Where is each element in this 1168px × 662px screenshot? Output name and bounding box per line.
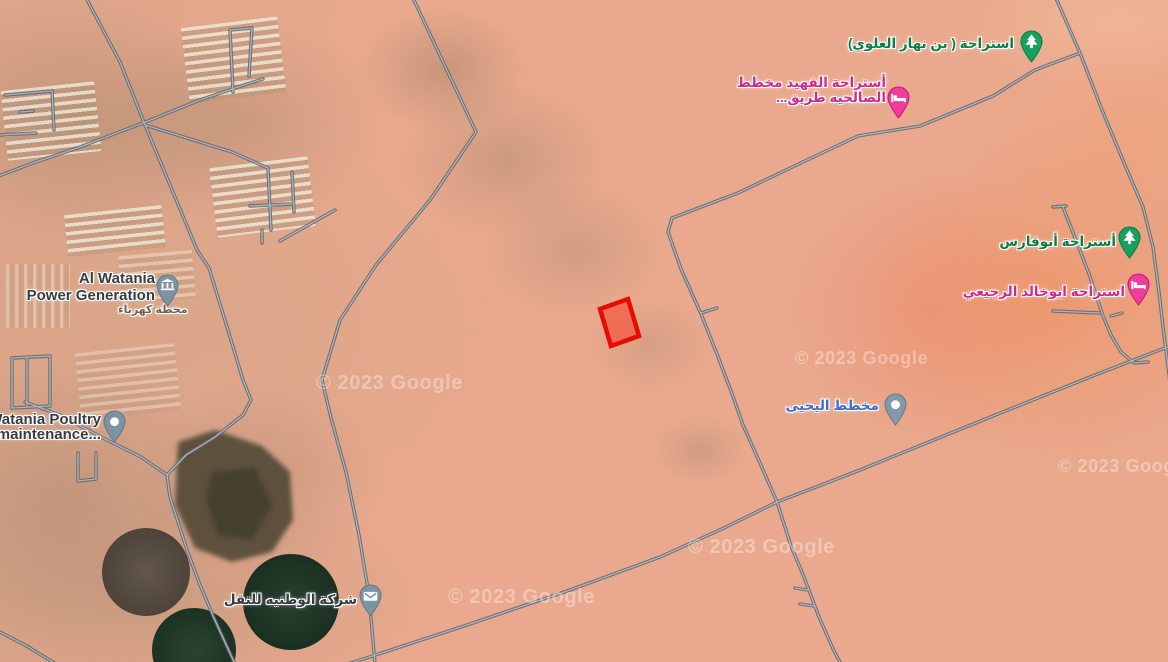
poi-label-watania-poultry-line2[interactable]: al maintenance... [0,427,101,442]
bank-pin[interactable] [155,274,180,307]
bed-pin[interactable] [1126,273,1151,306]
poi-label-watania-transport[interactable]: شركة الوطنيه للنقل [224,592,357,607]
selected-parcel-polygon[interactable] [600,299,639,346]
google-watermark: © 2023 Google [795,348,928,369]
selected-parcel-overlay[interactable] [0,0,1168,662]
poi-label-fahid-line1[interactable]: أستراحة الفهيد مخطط [737,75,886,90]
google-watermark: © 2023 Google [688,536,835,559]
poi-label-watania-power-line1[interactable]: Al Watania [27,271,155,288]
google-watermark: © 2023 Google [316,372,463,395]
tree-pin[interactable] [1117,226,1142,259]
satellite-map[interactable]: © 2023 Google © 2023 Google © 2023 Googl… [0,0,1168,662]
google-watermark: © 2023 Google [448,586,595,609]
poi-label-fahid-line2[interactable]: الصالحيه طريق... [737,90,886,105]
google-watermark: © 2023 Google [1058,456,1168,477]
mail-pin[interactable] [358,584,383,617]
place-dot-pin[interactable] [102,410,127,443]
place-dot-pin[interactable] [883,393,908,426]
poi-label-yahya[interactable]: مخطط اليحيى [785,398,879,413]
poi-label-watania-power-line2[interactable]: Power Generation [27,288,155,305]
poi-label-abukhalid[interactable]: استراحة ابوخالد الرجيعي [963,284,1125,299]
bed-pin[interactable] [886,86,911,119]
poi-label-watania-poultry-line1[interactable]: Watania Poultry [0,412,101,427]
tree-pin[interactable] [1019,30,1044,63]
poi-label-abufaris[interactable]: أستراحة أبوفارس [999,234,1116,249]
poi-label-bin-nahar[interactable]: استراحة ( بن نهار العلوي) [848,36,1014,51]
